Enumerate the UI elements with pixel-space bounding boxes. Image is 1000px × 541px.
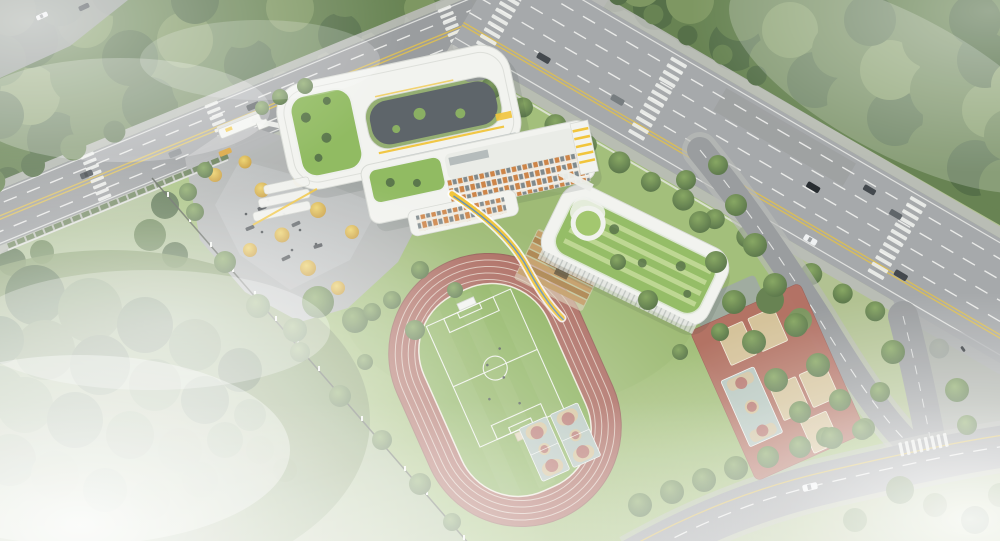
aerial-render-canvas — [0, 0, 1000, 541]
fog-overlay — [0, 0, 1000, 541]
campus-aerial-rendering — [0, 0, 1000, 541]
